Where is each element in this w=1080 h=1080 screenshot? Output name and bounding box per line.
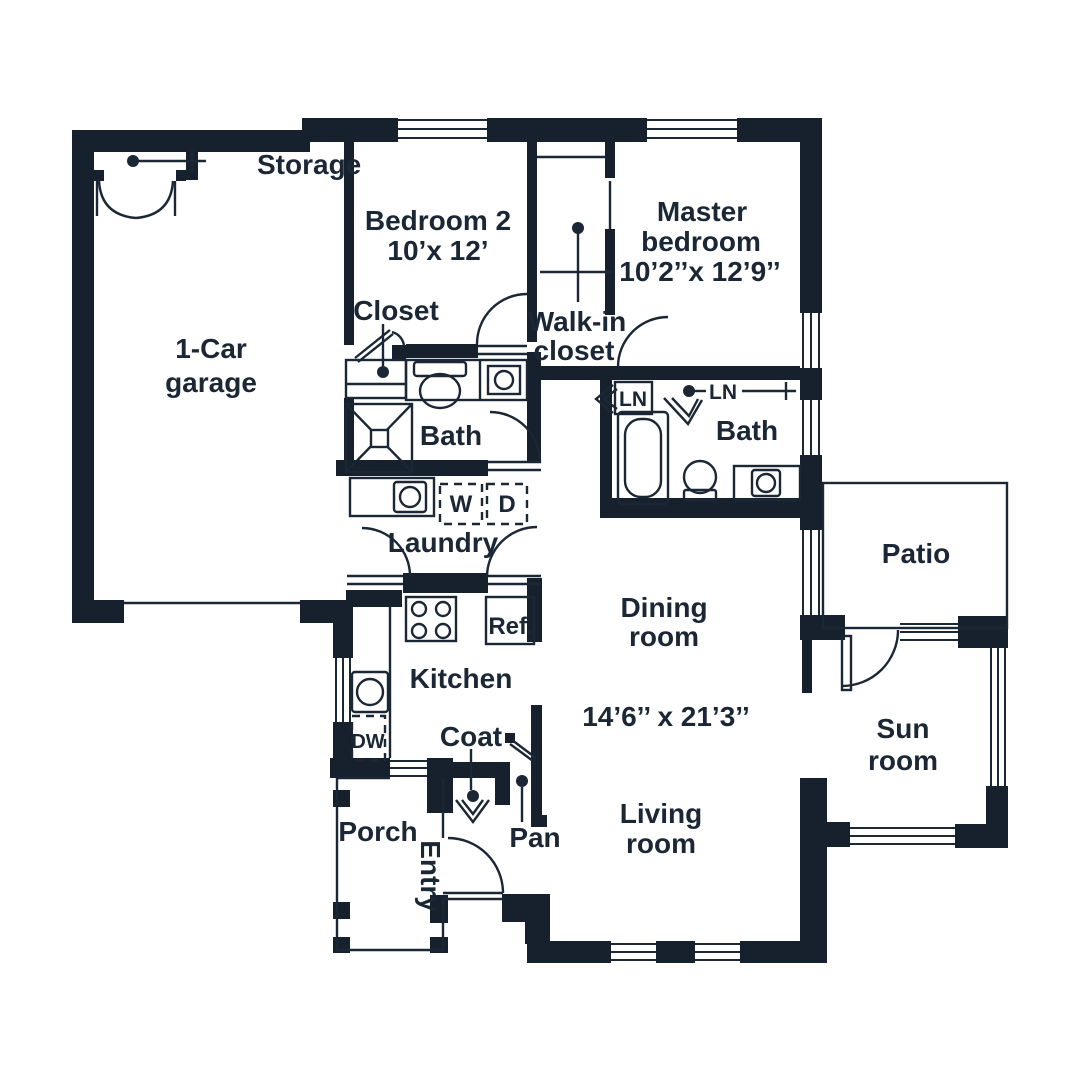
entry-door <box>443 838 503 899</box>
labels: Storage 1-Car garage Bedroom 2 10’x 12’ … <box>165 149 950 912</box>
window-living-1 <box>611 944 656 960</box>
label-dryer: D <box>498 491 515 518</box>
label-walkin-1: Walk-in <box>528 306 627 337</box>
label-patio: Patio <box>882 538 950 569</box>
label-master-1: Master <box>657 196 747 227</box>
label-walkin-2: closet <box>534 335 615 366</box>
pantry-dot <box>516 775 528 787</box>
window-living-2 <box>695 944 740 960</box>
label-storage: Storage <box>257 149 361 180</box>
window-master-right-2 <box>803 400 819 455</box>
kitchen-sink <box>352 672 388 712</box>
stove <box>406 597 456 641</box>
window-sunroom-top <box>900 624 958 640</box>
window-entry-sidelight <box>390 761 427 776</box>
window-top-1 <box>398 120 487 138</box>
floor-plan-drawing: Storage 1-Car garage Bedroom 2 10’x 12’ … <box>0 0 1080 1080</box>
label-sunroom-2: room <box>868 745 938 776</box>
label-garage-1: 1-Car <box>175 333 247 364</box>
label-entry: Entry <box>415 840 446 912</box>
master-bath-vanity <box>734 466 800 500</box>
window-sunroom-bottom <box>850 828 955 844</box>
bedroom2-closet <box>346 324 406 398</box>
label-linen-right: LN <box>709 381 737 404</box>
label-garage-2: garage <box>165 367 257 398</box>
master-bath-tub <box>618 412 668 504</box>
label-living-2: room <box>626 828 696 859</box>
label-porch: Porch <box>338 816 417 847</box>
label-living-1: Living <box>620 798 702 829</box>
bedroom2-door <box>477 294 527 354</box>
label-hall-bath: Bath <box>420 420 482 451</box>
storage-dot <box>127 155 139 167</box>
label-washer: W <box>450 491 473 518</box>
coat-dot <box>467 790 479 802</box>
laundry-sink <box>350 478 434 516</box>
label-coat: Coat <box>440 721 502 752</box>
label-master-2: bedroom <box>641 226 761 257</box>
label-dishwasher: DW <box>351 731 384 753</box>
closet-dot <box>377 366 389 378</box>
label-sunroom-1: Sun <box>877 713 930 744</box>
sunroom-door <box>842 630 898 690</box>
label-dining-2: room <box>629 621 699 652</box>
storage-doors <box>97 181 175 218</box>
linen-dot <box>683 385 695 397</box>
label-living-dims: 14’6’’ x 21’3’’ <box>582 701 750 732</box>
window-top-2 <box>647 120 737 138</box>
floor-plan-page: Storage 1-Car garage Bedroom 2 10’x 12’ … <box>0 0 1080 1080</box>
label-master-dims: 10’2’’x 12’9’’ <box>619 256 780 287</box>
master-bath-toilet <box>684 461 716 500</box>
label-bedroom2-dims: 10’x 12’ <box>387 235 488 266</box>
label-dining-1: Dining <box>620 592 707 623</box>
label-laundry: Laundry <box>388 527 499 558</box>
window-sunroom-right <box>991 648 1005 786</box>
window-kitchen <box>336 658 350 722</box>
label-closet: Closet <box>353 295 439 326</box>
label-kitchen: Kitchen <box>410 663 513 694</box>
label-master-bath: Bath <box>716 415 778 446</box>
window-master-right-1 <box>803 313 819 368</box>
window-dining-right <box>803 530 819 615</box>
label-pantry: Pan <box>509 822 560 853</box>
coat-closet <box>456 749 489 822</box>
label-fridge: Ref. <box>488 613 533 640</box>
label-linen-left: LN <box>619 388 647 411</box>
walkin-dot <box>572 222 584 234</box>
label-bedroom2: Bedroom 2 <box>365 205 511 236</box>
